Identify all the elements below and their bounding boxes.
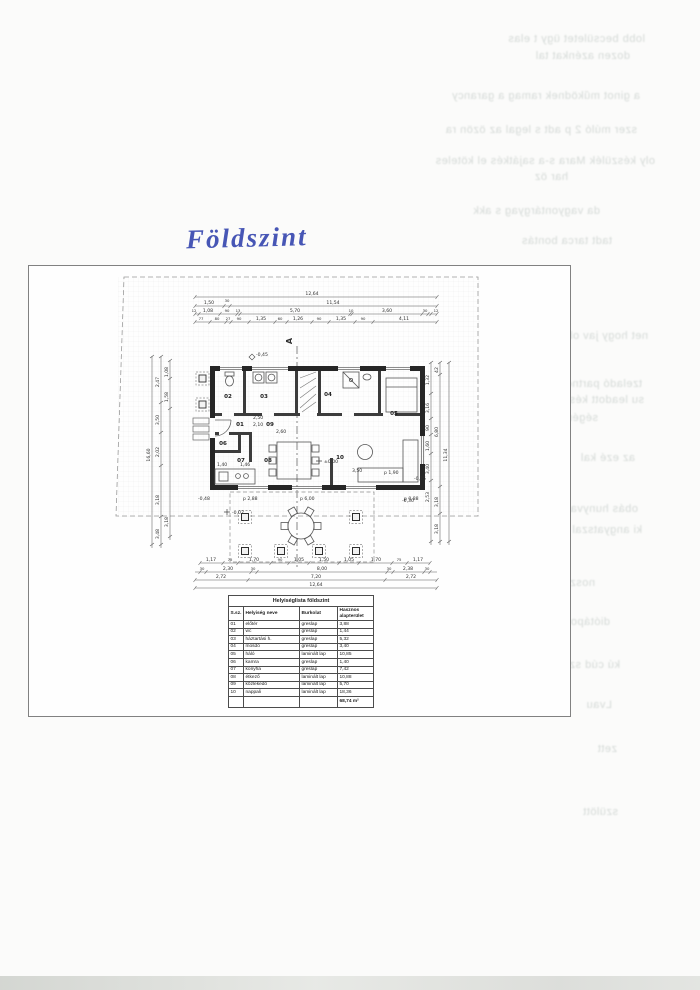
room-label: 04 — [324, 392, 332, 398]
col-header: Hasznos alapterület — [338, 607, 374, 621]
dim-label: 3,16 — [425, 403, 431, 413]
dim-label: 60 — [278, 316, 283, 321]
dim-label: 2,72 — [406, 574, 416, 580]
cell: 05 — [229, 651, 244, 659]
dim-label: 7,20 — [311, 574, 321, 580]
dim-label: 12,64 — [309, 582, 322, 588]
dim-label: 1,08 — [203, 308, 213, 314]
dim-label: 1,50 — [204, 300, 214, 306]
cell: greslap — [300, 643, 338, 651]
dim-label: 30 — [387, 566, 392, 571]
section-label: A — [285, 337, 294, 344]
floor-plan-drawing: A — [0, 0, 700, 990]
room-label: 03 — [260, 394, 268, 400]
dim-label: 13 — [236, 308, 241, 313]
cell: 18,36 — [338, 689, 374, 697]
dim-label: 90 — [361, 316, 366, 321]
cell: 3,88 — [338, 621, 374, 629]
dim-label: 3,18 — [155, 495, 161, 505]
dim-label: 2,10 — [253, 422, 263, 428]
cell: előtér — [244, 621, 300, 629]
dim-label: 77 — [199, 316, 204, 321]
dim-label: 90 — [225, 308, 230, 313]
room-list-table: Helyiséglista földszint S.sz. Helyiség n… — [228, 595, 374, 708]
dim-label: 75 — [397, 557, 402, 562]
level-label: -0,45 — [256, 352, 268, 358]
cell: 1,40 — [338, 658, 374, 666]
cell: greslap — [300, 621, 338, 629]
cell: 04 — [229, 643, 244, 651]
table-row: 05hálólaminált lap10,85 — [229, 651, 374, 659]
cell: 5,32 — [338, 636, 374, 644]
room-label: 02 — [224, 394, 232, 400]
dim-label: 11,54 — [326, 300, 339, 306]
garden-table — [281, 507, 321, 545]
col-header: S.sz. — [229, 607, 244, 621]
total-area: 68,74 m² — [338, 696, 374, 707]
dim-label: 3,50 — [352, 468, 362, 474]
dim-label: 30 — [251, 566, 256, 571]
cell: 1,44 — [338, 628, 374, 636]
room-label: 06 — [219, 441, 227, 447]
cell: konyha — [244, 666, 300, 674]
dim-label: 8,00 — [317, 566, 327, 572]
cell: greslap — [300, 636, 338, 644]
cell: 3,40 — [338, 643, 374, 651]
table-row: 06kamragreslap1,40 — [229, 658, 374, 666]
table-row: 08étkezőlaminált lap10,88 — [229, 674, 374, 682]
dim-label: 1,26 — [293, 316, 303, 322]
dim-label: 1,05 — [344, 557, 354, 563]
level-label: -0,02 — [232, 510, 244, 516]
dim-label: 2,53 — [425, 492, 431, 502]
table-row: 03háztartási h.greslap5,32 — [229, 636, 374, 644]
dim-label: 1,60 — [425, 441, 431, 451]
cell: nappali — [244, 689, 300, 697]
dim-label: 75 — [228, 557, 233, 562]
dim-label: 1,17 — [206, 557, 216, 563]
dim-text-top: 12,64 1,50 30 11,54 12 1,08 90 13 5,70 1… — [192, 291, 439, 322]
dim-label: 30 — [200, 566, 205, 571]
table-row: 04mosdógreslap3,40 — [229, 643, 374, 651]
dim-label: p 0,88 — [404, 496, 419, 502]
dim-label: 12,64 — [305, 291, 318, 297]
dim-label: p 1,90 — [384, 470, 399, 476]
cell — [300, 696, 338, 707]
cell: greslap — [300, 666, 338, 674]
cell: étkező — [244, 674, 300, 682]
dim-text-left: 2,47 3,50 2,02 3,18 3,48 1,08 1,58 3,18 … — [146, 367, 170, 539]
dim-label: 1,50 — [319, 557, 329, 563]
dim-label: 2,60 — [276, 429, 286, 435]
dim-label: 5,70 — [290, 308, 300, 314]
room-label: 05 — [390, 411, 398, 417]
dim-label: 3,50 — [155, 415, 161, 425]
dim-label: 30 — [423, 308, 428, 313]
cell: közlekedő — [244, 681, 300, 689]
scan-edge-shadow — [0, 976, 700, 990]
table-total-row: 68,74 m² — [229, 696, 374, 707]
dim-label: 3,60 — [382, 308, 392, 314]
cell: wc — [244, 628, 300, 636]
dim-label: 90 — [317, 316, 322, 321]
dim-label: 2,72 — [216, 574, 226, 580]
dim-label: 2,02 — [155, 447, 161, 457]
dim-label: 27 — [226, 316, 231, 321]
cell: 02 — [229, 628, 244, 636]
dim-label: p 2,88 — [243, 496, 258, 502]
dim-label: 2,30 — [223, 566, 233, 572]
dim-label: 42 — [434, 367, 440, 373]
dim-label: 1,40 — [217, 462, 227, 468]
dim-label: 16,60 — [146, 448, 152, 461]
cell: 09 — [229, 681, 244, 689]
dim-label: 3,40 — [425, 464, 431, 474]
dim-label: 6,80 — [434, 427, 440, 437]
cell — [244, 696, 300, 707]
col-header: Helyiség neve — [244, 607, 300, 621]
cell: 06 — [229, 658, 244, 666]
dim-label: 1,70 — [249, 557, 259, 563]
dim-label: 12 — [434, 308, 439, 313]
dim-label: 80 — [215, 316, 220, 321]
cell: mosdó — [244, 643, 300, 651]
dim-label: 2,50 — [253, 415, 263, 421]
cell: greslap — [300, 658, 338, 666]
entrance-steps — [193, 418, 209, 440]
dim-label: 90 — [237, 316, 242, 321]
cell: laminált lap — [300, 689, 338, 697]
dim-label: 4,11 — [399, 316, 409, 322]
dim-label: 1,58 — [164, 392, 170, 402]
cell: greslap — [300, 628, 338, 636]
level-label: -0,48 — [198, 496, 210, 502]
dim-label: 3,18 — [434, 524, 440, 534]
cell: háló — [244, 651, 300, 659]
cell: laminált lap — [300, 681, 338, 689]
dim-label: 1,35 — [336, 316, 346, 322]
dim-label: 1,08 — [164, 367, 170, 377]
toilet-icon — [225, 372, 234, 376]
cell: kamra — [244, 658, 300, 666]
scanned-page: { "page": { "handwritten_title": "Földsz… — [0, 0, 700, 990]
cell: laminált lap — [300, 674, 338, 682]
dim-label: 2,38 — [403, 566, 413, 572]
dim-label: 1,35 — [256, 316, 266, 322]
dim-label: 11,34 — [443, 448, 449, 461]
cell: 5,70 — [338, 681, 374, 689]
dim-label: 90 — [278, 557, 283, 562]
table-row: 02wcgreslap1,44 — [229, 628, 374, 636]
table-row: 09közlekedőlaminált lap5,70 — [229, 681, 374, 689]
room-label: 08 — [264, 458, 272, 464]
dim-label: 3,18 — [164, 517, 170, 527]
cell: 7,42 — [338, 666, 374, 674]
cell: 07 — [229, 666, 244, 674]
dim-label: 90 — [425, 425, 431, 431]
dim-label: 3,18 — [434, 497, 440, 507]
table-row: 10nappalilaminált lap18,36 — [229, 689, 374, 697]
cell: laminált lap — [300, 651, 338, 659]
cell: háztartási h. — [244, 636, 300, 644]
stair-hatch — [300, 372, 316, 412]
cell: 08 — [229, 674, 244, 682]
dim-label: 1,46 — [240, 462, 250, 468]
dim-label: 10 — [349, 308, 354, 313]
cell — [229, 696, 244, 707]
cell: 01 — [229, 621, 244, 629]
cell: 10,88 — [338, 674, 374, 682]
porch-columns — [196, 372, 209, 411]
cell: 10 — [229, 689, 244, 697]
room-label: 01 — [236, 422, 244, 428]
dim-label: 1,17 — [413, 557, 423, 563]
terrace-columns — [239, 511, 363, 558]
cell: 03 — [229, 636, 244, 644]
dim-label: 3,48 — [155, 529, 161, 539]
dim-text-right: 1,32 3,16 90 1,60 3,40 2,53 42 6,80 3,18… — [425, 367, 449, 534]
dim-label: 2,47 — [155, 377, 161, 387]
col-header: Burkolat — [300, 607, 338, 621]
dim-label: 30 — [425, 566, 430, 571]
dim-label: 1,32 — [425, 375, 431, 385]
cell: 10,85 — [338, 651, 374, 659]
table-row: 07konyhagreslap7,42 — [229, 666, 374, 674]
table-row: 01előtérgreslap3,88 — [229, 621, 374, 629]
dim-label: p 6,00 — [300, 496, 315, 502]
level-label: -0,15 — [414, 476, 426, 482]
room-label: 09 — [266, 422, 274, 428]
dim-label: 1,70 — [371, 557, 381, 563]
level-label: ±0,00 — [324, 459, 338, 465]
dim-label: 1,05 — [294, 557, 304, 563]
terrace — [230, 492, 374, 562]
dim-label: 30 — [225, 298, 230, 303]
dim-label: 12 — [192, 308, 197, 313]
table-title: Helyiséglista földszint — [229, 596, 374, 607]
